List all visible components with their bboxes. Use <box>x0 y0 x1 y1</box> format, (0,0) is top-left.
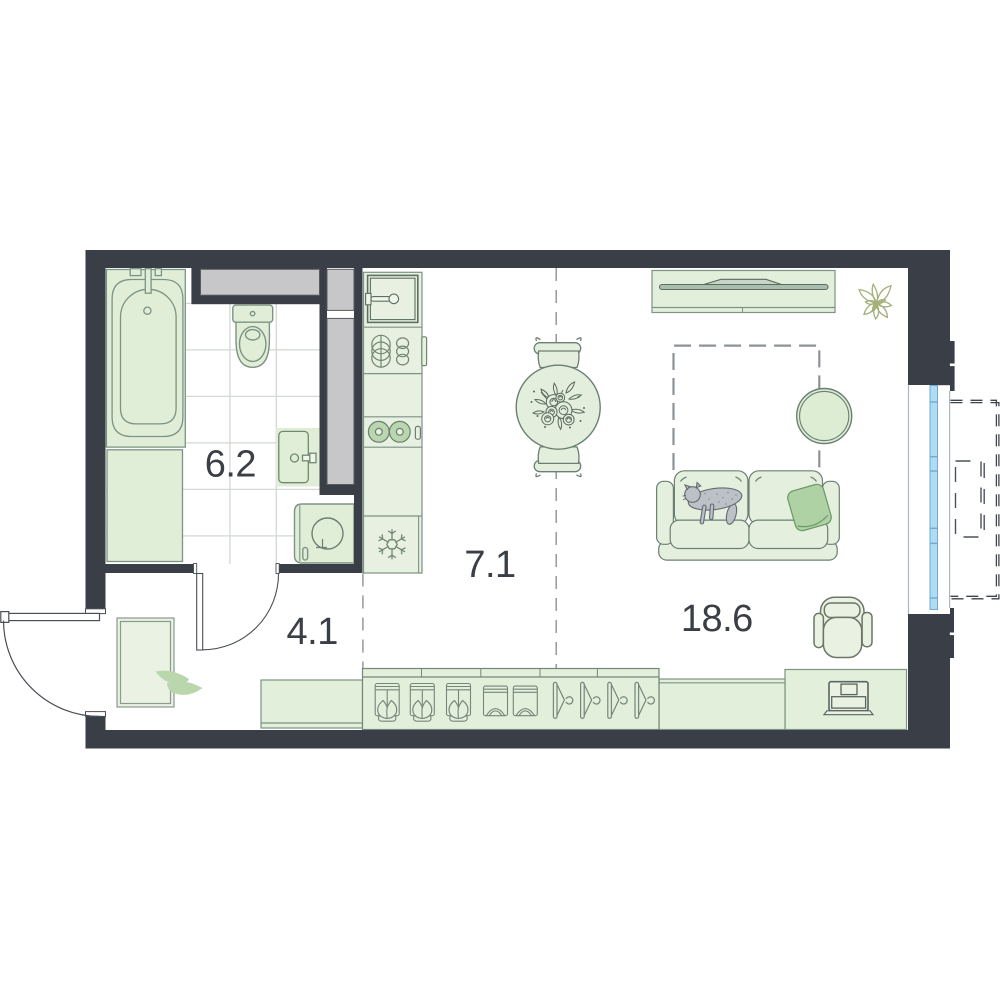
svg-text:6.2: 6.2 <box>205 443 256 485</box>
svg-text:4.1: 4.1 <box>287 611 338 653</box>
svg-text:7.1: 7.1 <box>464 544 515 586</box>
svg-text:18.6: 18.6 <box>681 598 753 640</box>
